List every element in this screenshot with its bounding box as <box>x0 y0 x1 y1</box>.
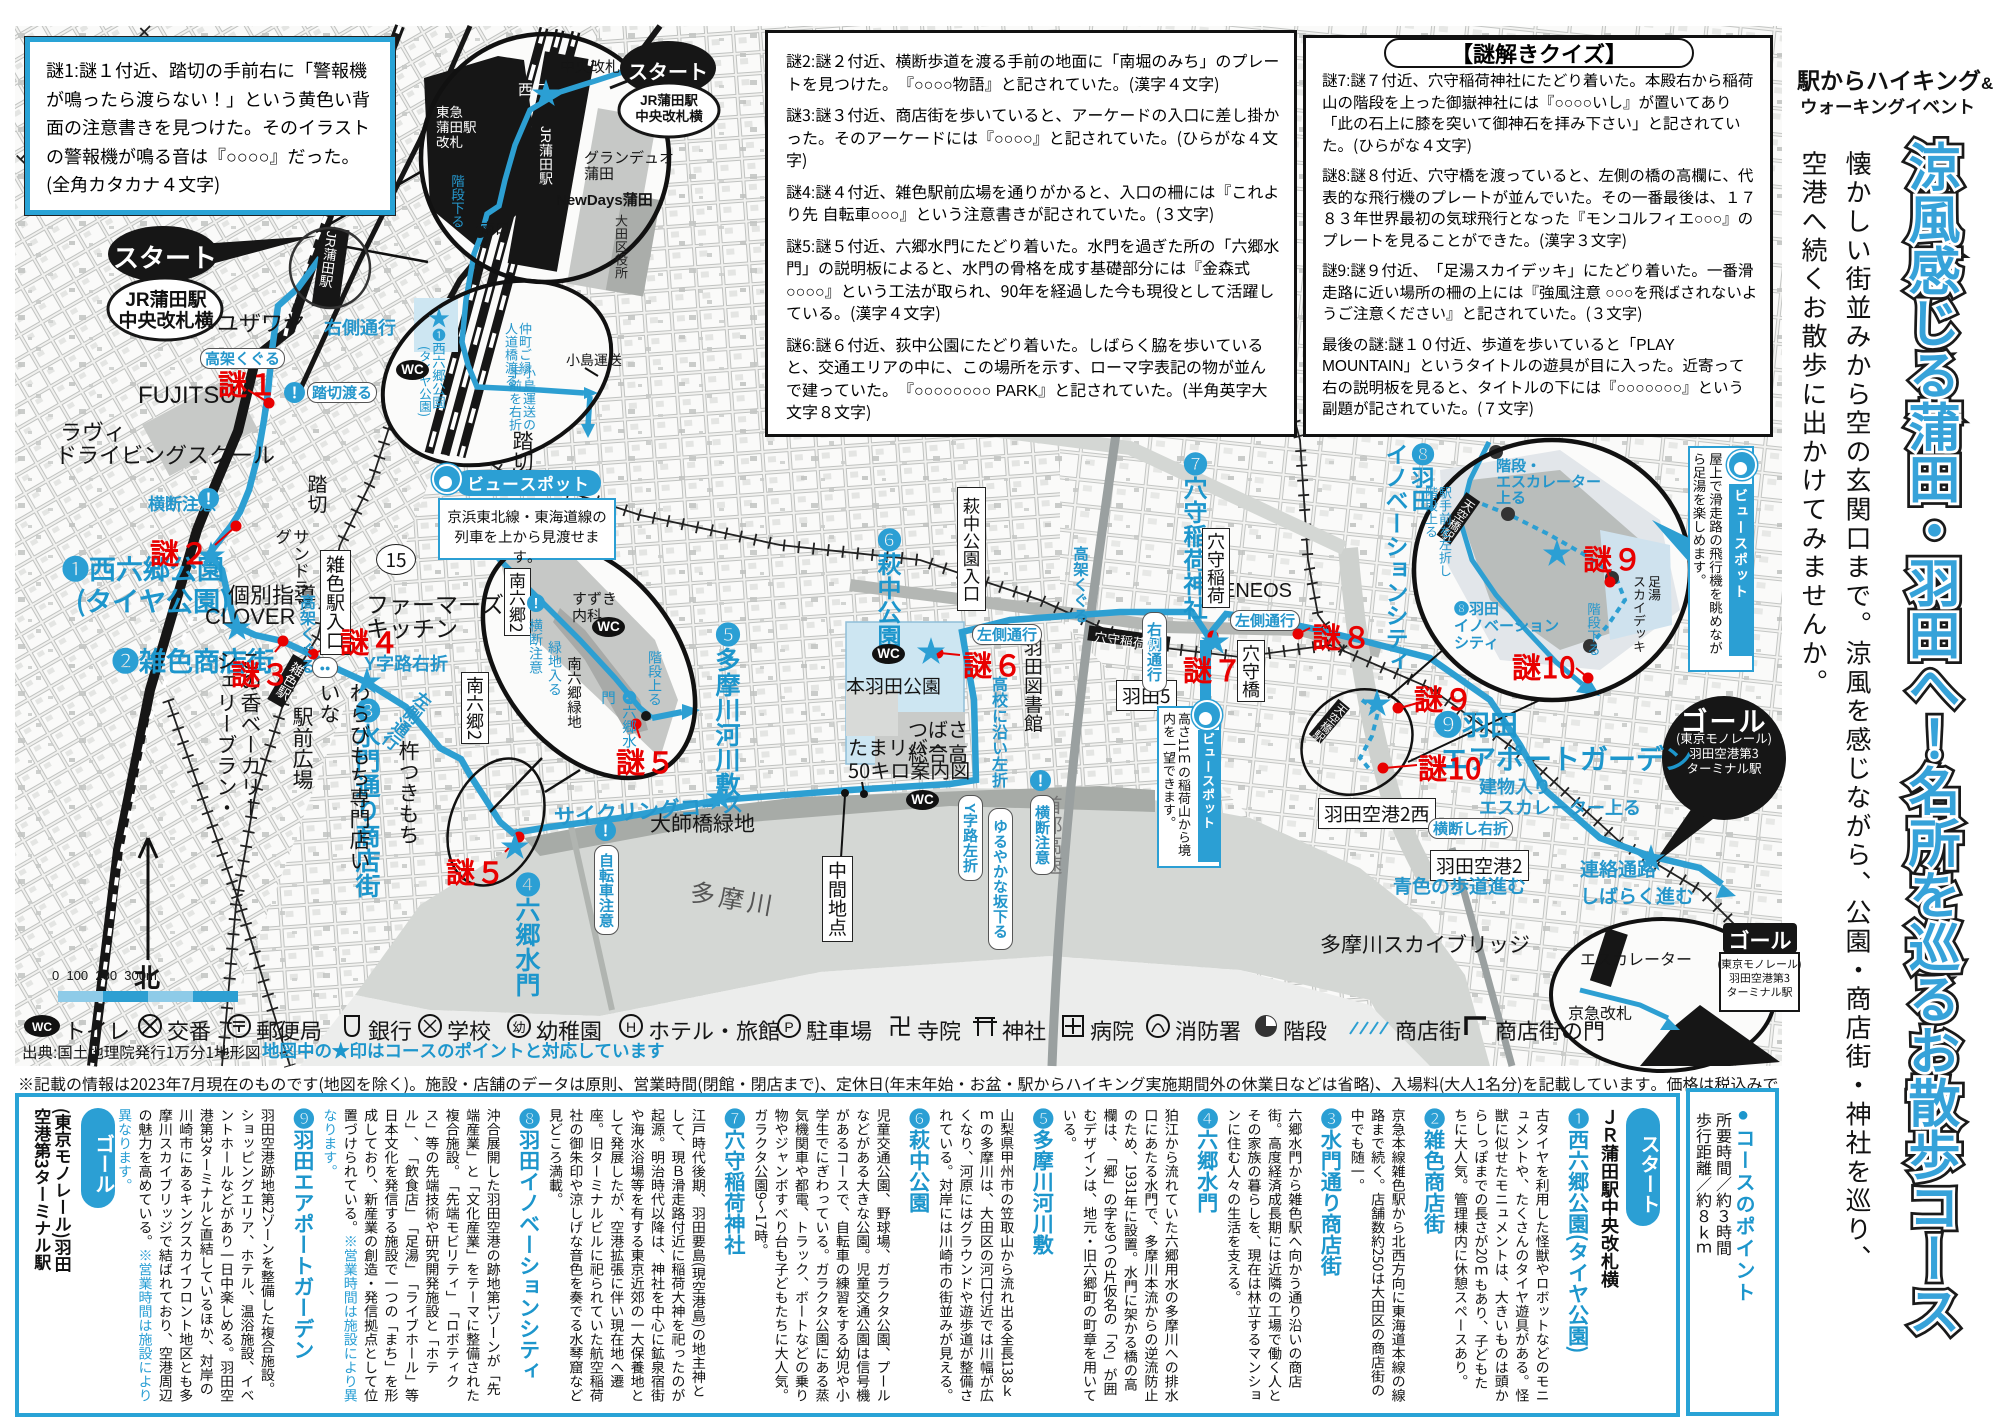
svg-text:卍: 卍 <box>888 1007 912 1042</box>
svg-text:WC: WC <box>32 1020 52 1034</box>
svg-text:P: P <box>784 1019 793 1035</box>
svg-text:H: H <box>626 1019 636 1035</box>
